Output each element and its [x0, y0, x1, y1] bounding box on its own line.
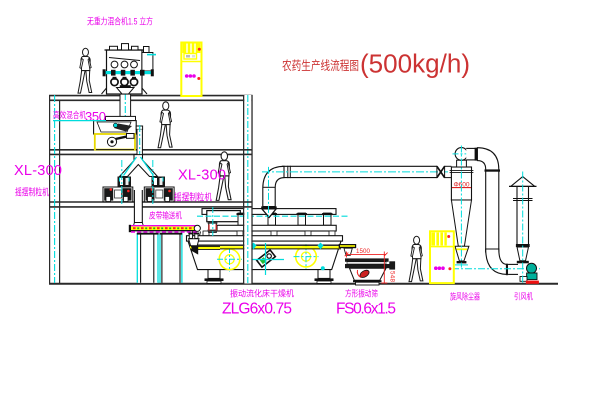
svg-text:350: 350	[85, 109, 106, 124]
svg-text:振动流化床干燥机: 振动流化床干燥机	[230, 289, 294, 299]
svg-text:(500kg/h): (500kg/h)	[360, 51, 470, 79]
svg-text:XL-300: XL-300	[178, 167, 226, 183]
svg-text:高效混合机: 高效混合机	[53, 110, 86, 120]
svg-text:方形振动筛: 方形振动筛	[345, 289, 378, 299]
svg-text:1500: 1500	[356, 248, 371, 255]
svg-text:无重力混合机1.5 立方: 无重力混合机1.5 立方	[87, 16, 153, 27]
svg-text:XL-300: XL-300	[14, 163, 62, 179]
svg-text:农药生产线流程图: 农药生产线流程图	[282, 58, 359, 73]
svg-text:皮带输送机: 皮带输送机	[149, 211, 182, 221]
svg-text:旋风除尘器: 旋风除尘器	[450, 291, 480, 301]
svg-text:ZLG6x0.75: ZLG6x0.75	[222, 301, 292, 318]
svg-text:摇摆制粒机: 摇摆制粒机	[15, 186, 49, 198]
svg-text:FS0.6x1.5: FS0.6x1.5	[336, 301, 396, 318]
svg-text:548: 548	[389, 271, 396, 283]
svg-text:摇摆制粒机: 摇摆制粒机	[174, 191, 212, 203]
svg-text:引风机: 引风机	[514, 291, 533, 301]
